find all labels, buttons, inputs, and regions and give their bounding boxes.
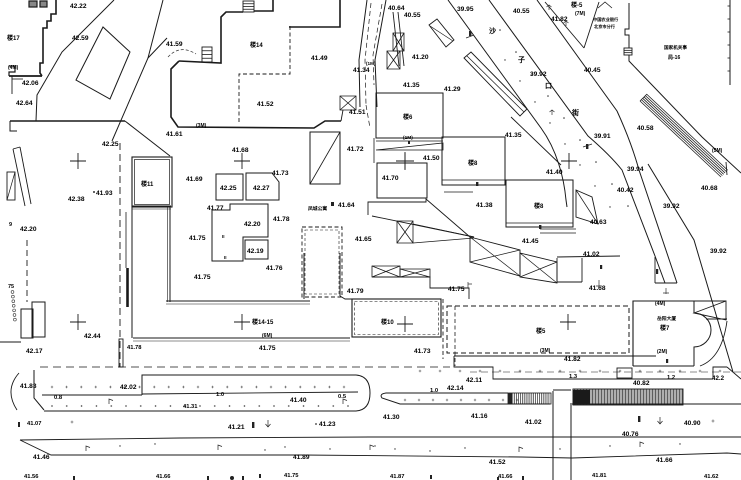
svg-text:41.68: 41.68 xyxy=(232,147,249,154)
svg-text:41.69: 41.69 xyxy=(186,176,203,183)
svg-text:中国农业银行: 中国农业银行 xyxy=(593,16,619,23)
svg-text:41.16: 41.16 xyxy=(471,413,488,420)
svg-text:岳阳大厦: 岳阳大厦 xyxy=(657,315,676,322)
svg-text:41.07: 41.07 xyxy=(27,421,42,427)
svg-text:楼-5: 楼-5 xyxy=(571,1,583,9)
svg-text:楼8: 楼8 xyxy=(468,159,478,167)
svg-text:41.78: 41.78 xyxy=(273,216,290,223)
svg-text:41.59: 41.59 xyxy=(166,41,183,48)
svg-text:42.2: 42.2 xyxy=(712,375,725,382)
svg-text:局-16: 局-16 xyxy=(667,54,680,61)
svg-text:41.61: 41.61 xyxy=(166,131,183,138)
svg-text:41.93: 41.93 xyxy=(96,190,113,197)
svg-text:41.52: 41.52 xyxy=(257,101,274,108)
svg-text:9: 9 xyxy=(9,222,12,228)
svg-text:41.56: 41.56 xyxy=(24,474,39,480)
svg-text:41.45: 41.45 xyxy=(522,238,539,245)
svg-text:40.68: 40.68 xyxy=(701,185,718,192)
svg-text:39.92: 39.92 xyxy=(530,71,547,78)
svg-text:42.38: 42.38 xyxy=(68,196,85,203)
svg-text:39.91: 39.91 xyxy=(594,133,611,140)
svg-text:沙: 沙 xyxy=(489,27,496,35)
svg-text:41.40: 41.40 xyxy=(290,397,307,404)
svg-text:42.25: 42.25 xyxy=(102,141,119,148)
svg-text:41.66: 41.66 xyxy=(498,474,513,480)
svg-text:42.20: 42.20 xyxy=(20,226,37,233)
svg-text:41.75: 41.75 xyxy=(194,274,211,281)
svg-text:40.55: 40.55 xyxy=(404,12,421,19)
svg-text:楼7: 楼7 xyxy=(660,324,670,332)
svg-text:41.35: 41.35 xyxy=(403,82,420,89)
svg-text:41.50: 41.50 xyxy=(423,155,440,162)
svg-text:楼6: 楼6 xyxy=(403,113,413,121)
svg-text:凤城公寓: 凤城公寓 xyxy=(308,205,327,212)
svg-text:39.92: 39.92 xyxy=(710,248,727,255)
svg-text:42.59: 42.59 xyxy=(72,35,89,42)
svg-text:39.92: 39.92 xyxy=(663,203,680,210)
svg-text:41.78: 41.78 xyxy=(127,345,142,351)
svg-text:41.62: 41.62 xyxy=(704,474,719,480)
svg-text:41.46: 41.46 xyxy=(33,454,50,461)
svg-text:(7M): (7M) xyxy=(575,11,586,17)
svg-text:41.82: 41.82 xyxy=(564,356,581,363)
svg-text:42.11: 42.11 xyxy=(466,377,482,384)
svg-text:42.25: 42.25 xyxy=(220,185,237,192)
svg-text:41.35: 41.35 xyxy=(505,132,522,139)
svg-text:41.66: 41.66 xyxy=(656,457,673,464)
svg-text:41.75: 41.75 xyxy=(259,345,276,352)
svg-text:40.90: 40.90 xyxy=(684,420,701,427)
svg-text:41.76: 41.76 xyxy=(266,265,283,272)
svg-text:(3M): (3M) xyxy=(540,348,551,354)
svg-text:41.40: 41.40 xyxy=(546,169,563,176)
svg-text:41.31: 41.31 xyxy=(183,404,198,410)
svg-text:41.79: 41.79 xyxy=(347,288,364,295)
svg-text:(4M): (4M) xyxy=(655,301,666,307)
svg-text:40.63: 40.63 xyxy=(590,219,607,226)
svg-text:41.70: 41.70 xyxy=(382,175,399,182)
svg-text:40.55: 40.55 xyxy=(513,8,530,15)
svg-text:41.64: 41.64 xyxy=(338,202,355,209)
svg-text:41.89: 41.89 xyxy=(293,454,310,461)
svg-text:41.02: 41.02 xyxy=(525,419,542,426)
svg-text:41.66: 41.66 xyxy=(156,474,171,480)
svg-text:口: 口 xyxy=(545,82,552,90)
svg-text:国家机关事: 国家机关事 xyxy=(664,44,687,51)
svg-text:0.5: 0.5 xyxy=(338,394,347,400)
svg-text:42.14: 42.14 xyxy=(447,385,464,392)
svg-text:42.44: 42.44 xyxy=(84,333,101,340)
svg-text:41.77: 41.77 xyxy=(207,205,224,212)
svg-text:(5M): (5M) xyxy=(712,148,723,154)
svg-text:40.58: 40.58 xyxy=(637,125,654,132)
svg-text:楼8: 楼8 xyxy=(534,202,544,210)
svg-text:II: II xyxy=(222,234,225,239)
svg-text:42.64: 42.64 xyxy=(16,100,33,107)
svg-text:41.75: 41.75 xyxy=(284,473,299,479)
svg-text:街: 街 xyxy=(571,108,579,117)
svg-text:(4M): (4M) xyxy=(8,65,19,71)
svg-text:41.75: 41.75 xyxy=(189,235,206,242)
svg-text:楼14-15: 楼14-15 xyxy=(252,318,274,326)
svg-text:1.3: 1.3 xyxy=(569,374,578,380)
svg-text:北京市分行: 北京市分行 xyxy=(594,23,616,30)
svg-text:41.75: 41.75 xyxy=(448,286,465,293)
svg-text:1.2: 1.2 xyxy=(667,375,675,381)
svg-text:(3M): (3M) xyxy=(196,123,207,129)
svg-text:41.51: 41.51 xyxy=(349,109,366,116)
svg-text:41.30: 41.30 xyxy=(383,414,400,421)
svg-text:41.65: 41.65 xyxy=(355,236,372,243)
svg-text:40.64: 40.64 xyxy=(388,5,405,12)
svg-text:1.0: 1.0 xyxy=(216,392,224,398)
svg-text:39.95: 39.95 xyxy=(457,6,474,13)
svg-text:41.34: 41.34 xyxy=(353,67,370,74)
svg-text:41.52: 41.52 xyxy=(489,459,506,466)
svg-text:42.17: 42.17 xyxy=(26,348,43,355)
svg-text:41.81: 41.81 xyxy=(592,473,607,479)
svg-text:0.8: 0.8 xyxy=(54,395,63,401)
svg-text:(1M): (1M) xyxy=(366,61,376,66)
svg-text:40.45: 40.45 xyxy=(584,67,601,74)
svg-text:75: 75 xyxy=(8,284,14,290)
svg-text:II: II xyxy=(224,255,227,260)
svg-text:42.22: 42.22 xyxy=(70,3,87,10)
svg-text:41.87: 41.87 xyxy=(390,474,405,480)
svg-text:楼10: 楼10 xyxy=(381,318,394,326)
svg-text:42.02: 42.02 xyxy=(120,384,137,391)
svg-text:40.42: 40.42 xyxy=(617,187,634,194)
svg-text:子: 子 xyxy=(518,56,525,64)
svg-text:楼17: 楼17 xyxy=(7,34,20,42)
svg-text:楼5: 楼5 xyxy=(536,327,546,335)
svg-text:42.27: 42.27 xyxy=(253,185,270,192)
svg-text:41.20: 41.20 xyxy=(412,54,429,61)
svg-text:42.20: 42.20 xyxy=(244,221,261,228)
svg-text:41.21: 41.21 xyxy=(228,424,245,431)
svg-text:41.72: 41.72 xyxy=(347,146,364,153)
svg-text:楼14: 楼14 xyxy=(250,41,263,49)
svg-text:楼11: 楼11 xyxy=(141,180,154,188)
svg-text:(6M): (6M) xyxy=(262,333,273,339)
svg-text:41.73: 41.73 xyxy=(272,170,289,177)
svg-text:41.73: 41.73 xyxy=(414,348,431,355)
svg-text:42.19: 42.19 xyxy=(247,248,264,255)
svg-text:41.29: 41.29 xyxy=(444,86,461,93)
svg-text:39.94: 39.94 xyxy=(627,166,644,173)
svg-text:(1M): (1M) xyxy=(403,135,413,141)
svg-text:(2M): (2M) xyxy=(657,349,668,355)
svg-text:41.23: 41.23 xyxy=(319,421,336,428)
svg-text:42.06: 42.06 xyxy=(22,80,39,87)
svg-text:40.82: 40.82 xyxy=(633,380,650,387)
svg-text:41.38: 41.38 xyxy=(476,202,493,209)
svg-text:41.49: 41.49 xyxy=(311,55,328,62)
